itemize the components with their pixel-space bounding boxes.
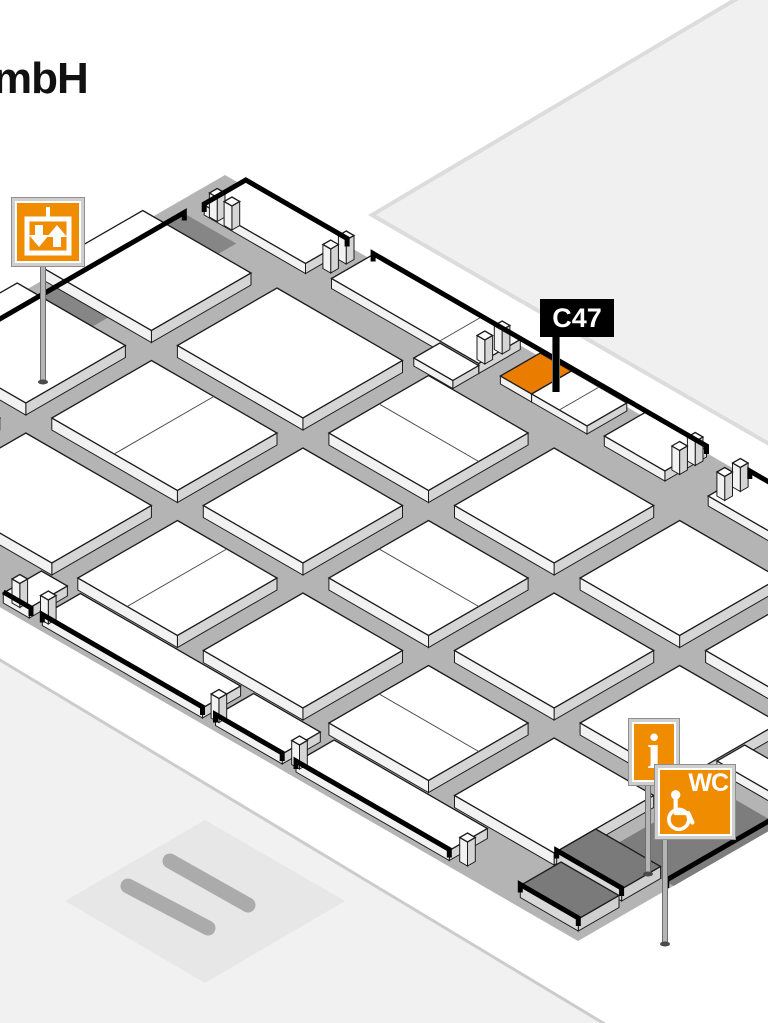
elevator-icon bbox=[18, 204, 78, 260]
pole-foot bbox=[660, 942, 670, 947]
page-title-fragment: mbH bbox=[0, 54, 88, 104]
pillar bbox=[733, 459, 749, 492]
pole-foot bbox=[643, 872, 653, 877]
booth-flag-c47[interactable]: C47 bbox=[540, 299, 614, 337]
hall-map[interactable] bbox=[0, 0, 768, 1023]
hall-plan-page: mbH i WC C47 bbox=[0, 0, 768, 1023]
wc-label: WC bbox=[688, 769, 728, 798]
pillar bbox=[477, 331, 493, 364]
pillar bbox=[672, 442, 688, 475]
pillar bbox=[717, 468, 733, 501]
wc-sign[interactable]: WC bbox=[655, 765, 735, 839]
pillar bbox=[323, 240, 339, 273]
pillar bbox=[460, 833, 476, 866]
pillar bbox=[224, 197, 240, 230]
elevator-sign[interactable] bbox=[12, 198, 84, 266]
pole-foot bbox=[38, 380, 48, 385]
